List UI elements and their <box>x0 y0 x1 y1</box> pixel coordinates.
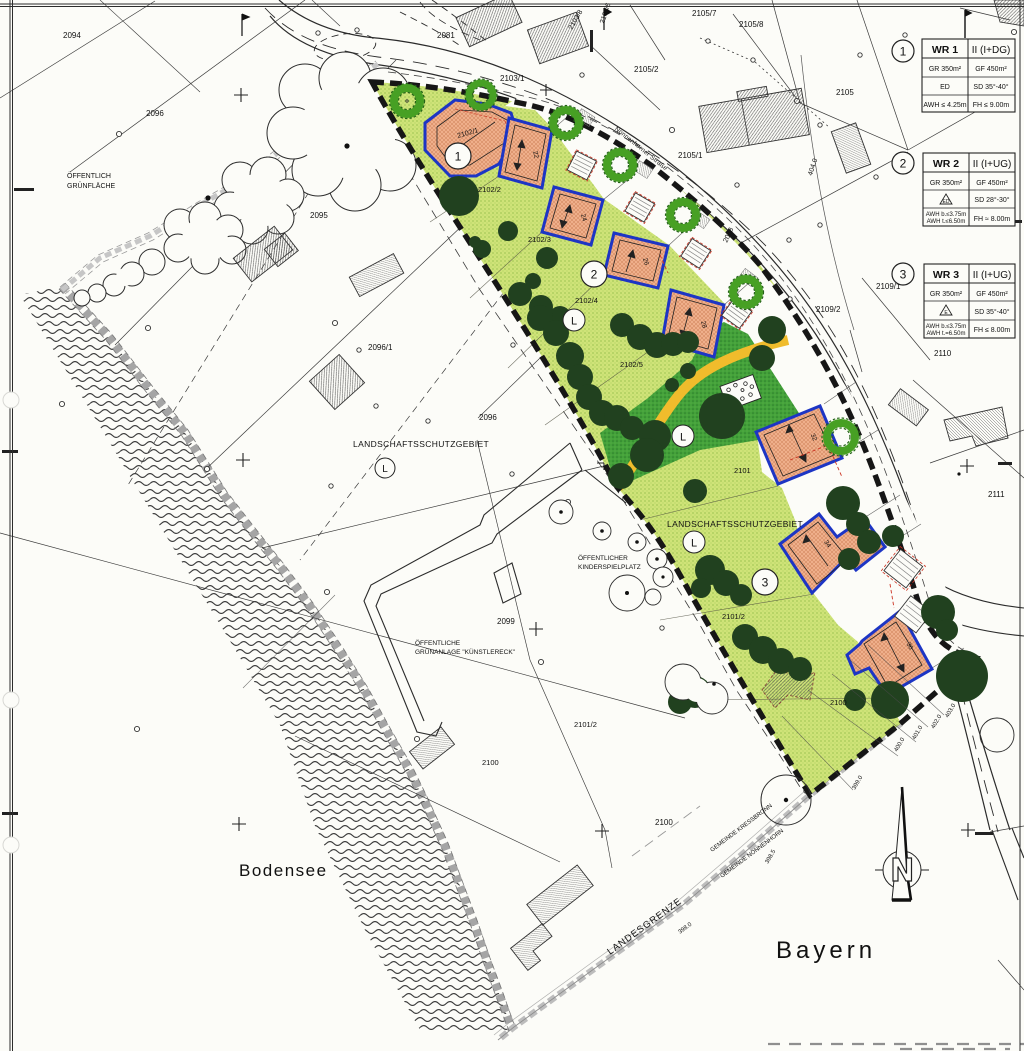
svg-text:GF 450m²: GF 450m² <box>976 291 1008 298</box>
svg-text:2105/7: 2105/7 <box>692 9 717 18</box>
svg-text:GF 450m²: GF 450m² <box>976 180 1008 187</box>
svg-text:2105: 2105 <box>836 88 854 97</box>
svg-text:GR 350m²: GR 350m² <box>929 66 962 73</box>
svg-text:GR 350m²: GR 350m² <box>930 291 963 298</box>
svg-text:KINDERSPIELPLATZ: KINDERSPIELPLATZ <box>578 564 641 571</box>
svg-text:ÖFFENTLICHER: ÖFFENTLICHER <box>578 554 628 562</box>
svg-text:2102/2: 2102/2 <box>478 185 501 194</box>
svg-text:ED: ED <box>943 199 950 205</box>
svg-text:AWH t.≤6.50m: AWH t.≤6.50m <box>927 219 966 225</box>
svg-text:2096: 2096 <box>479 413 497 422</box>
svg-text:2096: 2096 <box>146 109 164 118</box>
svg-text:II (I+UG): II (I+UG) <box>973 270 1012 281</box>
svg-text:SD 35°-40°: SD 35°-40° <box>974 308 1009 316</box>
svg-text:WR 1: WR 1 <box>932 44 958 56</box>
svg-text:2: 2 <box>900 157 907 171</box>
svg-text:GRÜNANLAGE "KÜNSTLERECK": GRÜNANLAGE "KÜNSTLERECK" <box>415 648 516 656</box>
svg-text:2100: 2100 <box>655 818 673 827</box>
svg-text:2101: 2101 <box>734 466 751 475</box>
svg-text:AWH t.=6.50m: AWH t.=6.50m <box>927 331 966 337</box>
svg-text:3: 3 <box>762 576 769 590</box>
svg-text:AWH b.≤3.75m: AWH b.≤3.75m <box>926 212 966 218</box>
svg-text:2102/5: 2102/5 <box>620 360 643 369</box>
svg-text:2095: 2095 <box>310 211 328 220</box>
svg-text:2105/8: 2105/8 <box>739 20 764 29</box>
svg-text:II (I+UG): II (I+UG) <box>973 159 1012 170</box>
svg-text:2102/4: 2102/4 <box>575 296 598 305</box>
svg-text:2: 2 <box>591 268 598 282</box>
svg-text:1: 1 <box>900 45 907 59</box>
svg-text:LANDSCHAFTSSCHUTZGEBIET: LANDSCHAFTSSCHUTZGEBIET <box>667 519 803 529</box>
svg-text:AWH ≤ 4.25m: AWH ≤ 4.25m <box>923 102 966 109</box>
svg-text:L: L <box>680 432 686 444</box>
svg-text:1: 1 <box>455 150 462 164</box>
svg-text:Bayern: Bayern <box>776 937 876 964</box>
svg-text:2081: 2081 <box>437 31 455 40</box>
svg-text:2100: 2100 <box>830 698 847 707</box>
svg-text:GF 450m²: GF 450m² <box>975 66 1007 73</box>
svg-text:2099: 2099 <box>497 617 515 626</box>
svg-text:GR 350m²: GR 350m² <box>930 180 963 187</box>
svg-text:WR 2: WR 2 <box>933 158 959 170</box>
svg-text:ED: ED <box>940 84 950 91</box>
svg-text:GRÜNFLÄCHE: GRÜNFLÄCHE <box>67 182 116 190</box>
svg-text:WR 3: WR 3 <box>933 269 959 281</box>
svg-text:2110: 2110 <box>934 349 952 358</box>
svg-text:2101/2: 2101/2 <box>722 612 745 621</box>
svg-text:2111: 2111 <box>988 490 1005 499</box>
svg-text:L: L <box>571 316 577 328</box>
svg-text:2109/2: 2109/2 <box>816 305 841 314</box>
svg-text:SD 28°-30°: SD 28°-30° <box>974 196 1009 204</box>
svg-text:2100: 2100 <box>482 758 499 767</box>
svg-text:ÖFFENTLICH: ÖFFENTLICH <box>67 172 111 180</box>
svg-text:SD 35°-40°: SD 35°-40° <box>973 83 1008 91</box>
svg-text:2102/3: 2102/3 <box>528 235 551 244</box>
svg-text:LANDSCHAFTSSCHUTZGEBIET: LANDSCHAFTSSCHUTZGEBIET <box>353 439 489 449</box>
svg-text:FH ≤ 9.00m: FH ≤ 9.00m <box>973 102 1010 109</box>
svg-text:FH ≤ 8.00m: FH ≤ 8.00m <box>974 327 1011 334</box>
svg-text:2105/2: 2105/2 <box>634 65 659 74</box>
svg-text:2096/1: 2096/1 <box>368 343 393 352</box>
svg-text:L: L <box>382 464 388 475</box>
svg-text:Bodensee: Bodensee <box>239 861 328 880</box>
svg-text:L: L <box>691 538 697 550</box>
svg-text:2105/1: 2105/1 <box>678 151 703 160</box>
svg-text:AWH b.≤3.75m: AWH b.≤3.75m <box>926 324 966 330</box>
svg-text:3: 3 <box>900 268 907 282</box>
svg-text:2103/1: 2103/1 <box>500 74 525 83</box>
svg-text:2094: 2094 <box>63 31 81 40</box>
svg-text:2101/2: 2101/2 <box>574 720 597 729</box>
svg-text:FH ≈ 8.00m: FH ≈ 8.00m <box>974 216 1011 223</box>
svg-text:II (I+DG): II (I+DG) <box>972 45 1011 56</box>
svg-text:ÖFFENTLICHE: ÖFFENTLICHE <box>415 639 461 647</box>
